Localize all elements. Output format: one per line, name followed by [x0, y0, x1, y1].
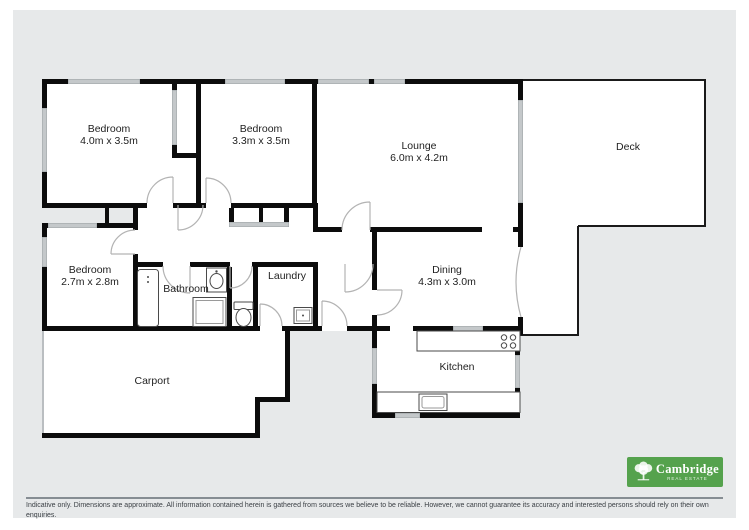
window [225, 79, 285, 84]
wall [518, 230, 523, 247]
wall [312, 79, 317, 207]
wall [313, 207, 318, 232]
room-name: Bedroom [40, 265, 140, 277]
room-dims: 3.3m x 3.5m [211, 136, 311, 148]
window [453, 326, 483, 331]
logo-tagline: Real Estate [656, 476, 719, 481]
room-label-bedroom-2: Bedroom 3.3m x 3.5m [211, 124, 311, 147]
window [48, 223, 97, 228]
window [172, 90, 177, 145]
agency-logo: Cambridge Real Estate [627, 457, 723, 487]
wall [347, 326, 390, 331]
room-name: Carport [102, 376, 202, 388]
logo-name: Cambridge [656, 463, 719, 476]
window [374, 79, 405, 84]
footer-divider [26, 497, 723, 499]
wall [105, 208, 109, 223]
wall [42, 433, 257, 438]
wall [518, 317, 523, 335]
wall [231, 203, 318, 208]
room-name: Laundry [237, 271, 337, 283]
room-label-carport: Carport [102, 376, 202, 388]
room-name: Bathroom [136, 284, 236, 296]
room-label-bedroom-3: Bedroom 2.7m x 2.8m [40, 265, 140, 288]
disclaimer-text: Indicative only. Dimensions are approxim… [26, 501, 726, 521]
window [42, 108, 47, 172]
wall [196, 79, 201, 208]
room-dims: 2.7m x 2.8m [40, 277, 140, 289]
room-area [523, 226, 578, 335]
room-name: Bedroom [59, 124, 159, 136]
window [372, 348, 377, 384]
wall [42, 203, 147, 208]
room-label-bathroom: Bathroom [136, 284, 236, 296]
room-label-laundry: Laundry [237, 271, 337, 283]
room-area [42, 397, 255, 438]
window [68, 79, 140, 84]
wall [285, 331, 290, 402]
room-dims: 4.0m x 3.5m [59, 136, 159, 148]
wall [172, 79, 177, 90]
floorplan-page: Bedroom 4.0m x 3.5m Bedroom 3.3m x 3.5m … [0, 0, 749, 530]
room-name: Deck [588, 142, 668, 154]
wall [370, 227, 482, 232]
window [395, 413, 420, 418]
window [518, 100, 523, 203]
wall [372, 228, 377, 290]
room-name: Dining [397, 265, 497, 277]
wall [252, 262, 318, 267]
room-label-dining: Dining 4.3m x 3.0m [397, 265, 497, 288]
window [42, 237, 47, 267]
wall [173, 203, 206, 208]
window [515, 355, 520, 388]
wall [190, 262, 230, 267]
room-area [42, 331, 290, 401]
room-name: Lounge [369, 141, 469, 153]
wall [255, 397, 260, 438]
wall [172, 145, 177, 158]
wall [372, 315, 377, 340]
window [229, 222, 289, 227]
logo-text: Cambridge Real Estate [656, 463, 719, 481]
wall [133, 208, 138, 230]
tree-icon [631, 459, 656, 485]
wall [227, 267, 232, 331]
room-dims: 4.3m x 3.0m [397, 277, 497, 289]
window [318, 79, 369, 84]
room-label-bedroom-1: Bedroom 4.0m x 3.5m [59, 124, 159, 147]
room-label-kitchen: Kitchen [407, 362, 507, 374]
room-label-lounge: Lounge 6.0m x 4.2m [369, 141, 469, 164]
room-label-deck: Deck [588, 142, 668, 154]
room-dims: 6.0m x 4.2m [369, 153, 469, 165]
room-name: Bedroom [211, 124, 311, 136]
room-name: Kitchen [407, 362, 507, 374]
